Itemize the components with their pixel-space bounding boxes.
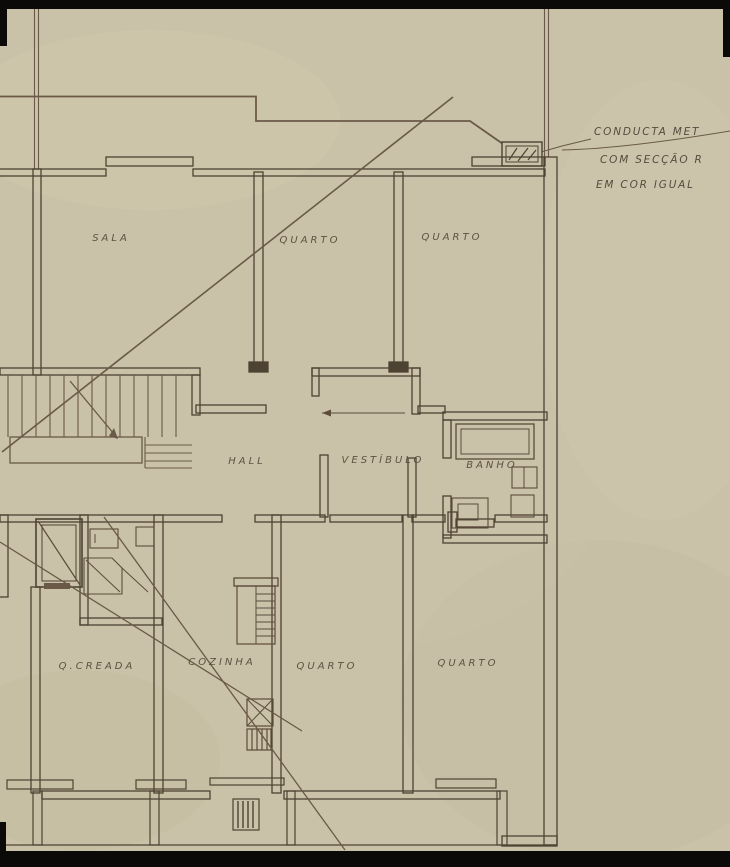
floor-plan-drawing: SALA QUARTO QUARTO HALL VESTÍBULO BANHO … (0, 0, 730, 867)
room-label-sala: SALA (92, 233, 130, 244)
duct-box (502, 142, 542, 166)
room-label-quarto-top-left: QUARTO (280, 235, 341, 246)
room-label-quarto-bottom-left: QUARTO (297, 661, 358, 672)
annotation-line-2: COM SECÇÃO R (600, 153, 704, 166)
room-label-q-creada: Q.CREADA (59, 661, 136, 672)
room-label-hall: HALL (228, 456, 266, 467)
room-label-quarto-bottom-right: QUARTO (438, 658, 499, 669)
room-label-banho: BANHO (466, 460, 518, 471)
room-label-vestibulo: VESTÍBULO (342, 453, 425, 466)
annotation-line-3: EM COR IGUAL (596, 179, 695, 191)
floor-plan-scan: SALA QUARTO QUARTO HALL VESTÍBULO BANHO … (0, 0, 730, 867)
room-label-quarto-top-right: QUARTO (422, 232, 483, 243)
room-label-cozinha: COZINHA (188, 657, 256, 668)
annotation-line-1: CONDUCTA MET (594, 126, 700, 138)
